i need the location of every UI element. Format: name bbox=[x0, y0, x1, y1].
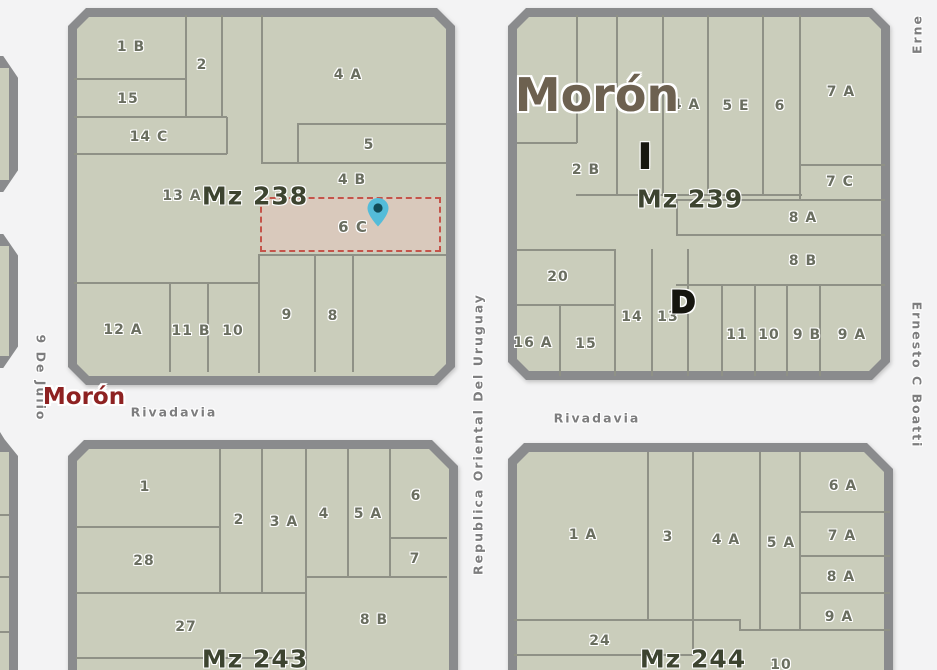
parcel-boundary-line bbox=[614, 249, 616, 376]
street-label: Rivadavia bbox=[131, 405, 218, 420]
parcel-boundary-line bbox=[219, 449, 221, 593]
parcel-boundary-line bbox=[74, 116, 227, 118]
parcel-boundary-line bbox=[517, 304, 615, 306]
parcel-label[interactable]: 4 A bbox=[712, 532, 740, 548]
parcel-boundary-line bbox=[676, 234, 885, 236]
parcel-boundary-line bbox=[347, 449, 349, 577]
selected-parcel-label[interactable]: 6 C bbox=[338, 218, 368, 236]
parcel-boundary-line bbox=[221, 15, 223, 117]
parcel-boundary-line bbox=[799, 15, 801, 200]
parcel-boundary-line bbox=[297, 123, 446, 125]
parcel-boundary-line bbox=[786, 284, 788, 376]
block-label-mz238: Mz 238 bbox=[202, 182, 308, 211]
parcel-label[interactable]: 3 A bbox=[270, 514, 298, 530]
parcel-boundary-line bbox=[721, 284, 723, 376]
parcel-boundary-line bbox=[261, 449, 263, 593]
parcel-label[interactable]: 24 bbox=[589, 633, 610, 649]
block-label-mz243: Mz 243 bbox=[202, 645, 308, 670]
parcel-label[interactable]: 5 bbox=[364, 137, 375, 153]
parcel-boundary-line bbox=[352, 255, 354, 372]
parcel-label[interactable]: 1 A bbox=[569, 527, 597, 543]
parcel-label[interactable]: 14 bbox=[621, 309, 642, 325]
parcel-label[interactable]: 8 B bbox=[360, 612, 388, 628]
parcel-boundary-line bbox=[305, 576, 447, 578]
parcel-boundary-line bbox=[389, 537, 447, 539]
parcel-boundary-line bbox=[762, 15, 764, 195]
parcel-boundary-line bbox=[799, 164, 885, 166]
parcel-boundary-line bbox=[754, 284, 756, 376]
map-marker-icon[interactable] bbox=[366, 197, 390, 228]
parcel-label[interactable]: 6 A bbox=[829, 478, 857, 494]
parcel-boundary-line bbox=[305, 449, 307, 577]
parcel-label[interactable]: 8 bbox=[328, 308, 339, 324]
parcel-label[interactable]: 11 B bbox=[171, 323, 210, 339]
parcel-label[interactable]: 7 bbox=[410, 551, 421, 567]
parcel-boundary-line bbox=[74, 153, 227, 155]
parcel-boundary-line bbox=[389, 449, 391, 577]
parcel-boundary-line bbox=[185, 15, 187, 117]
parcel-boundary-line bbox=[651, 249, 653, 376]
parcel-label[interactable]: 5 A bbox=[767, 535, 795, 551]
block-label-mz244: Mz 244 bbox=[640, 645, 746, 670]
parcel-boundary-line bbox=[799, 452, 801, 630]
parcel-label[interactable]: 1 B bbox=[117, 39, 145, 55]
parcel-label[interactable]: 2 B bbox=[572, 162, 600, 178]
zone-letter: I bbox=[639, 137, 652, 177]
parcel-boundary-line bbox=[258, 255, 260, 373]
parcel-label[interactable]: 8 A bbox=[789, 210, 817, 226]
parcel-boundary-line bbox=[297, 124, 299, 163]
parcel-boundary-line bbox=[74, 78, 186, 80]
parcel-label[interactable]: 10 bbox=[770, 657, 791, 670]
parcel-boundary-line bbox=[74, 282, 260, 284]
parcel-label[interactable]: 14 C bbox=[130, 129, 169, 145]
zone-letter: D bbox=[671, 286, 696, 321]
parcel-label[interactable]: 13 A bbox=[162, 188, 201, 204]
parcel-boundary-line bbox=[559, 304, 561, 376]
street-label: Republica Oriental Del Uruguay bbox=[471, 293, 486, 575]
parcel-label[interactable]: 27 bbox=[175, 619, 196, 635]
parcel-label[interactable]: 10 bbox=[758, 327, 779, 343]
parcel-label[interactable]: 4 B bbox=[338, 172, 366, 188]
parcel-boundary-line bbox=[799, 592, 890, 594]
parcel-label[interactable]: 12 A bbox=[103, 322, 142, 338]
parcel-boundary-line bbox=[314, 255, 316, 372]
parcel-boundary-line bbox=[759, 452, 761, 630]
parcel-label[interactable]: 9 A bbox=[825, 609, 853, 625]
parcel-boundary-line bbox=[799, 555, 890, 557]
parcel-boundary-line bbox=[647, 452, 649, 620]
block-mz243[interactable] bbox=[68, 440, 458, 670]
parcel-boundary-line bbox=[707, 15, 709, 193]
parcel-boundary-line bbox=[514, 619, 740, 621]
street-label: Erne bbox=[910, 14, 925, 54]
parcel-label[interactable]: 15 bbox=[575, 336, 596, 352]
parcel-boundary-line bbox=[261, 162, 446, 164]
parcel-label[interactable]: 10 bbox=[222, 323, 243, 339]
parcel-boundary-line bbox=[226, 117, 228, 154]
cadastral-map: 6 C Morón Morón Mz 2381 B21514 C4 A54 B1… bbox=[0, 0, 937, 670]
parcel-label[interactable]: 4 bbox=[319, 506, 330, 522]
parcel-label[interactable]: 9 bbox=[282, 307, 293, 323]
parcel-boundary-line bbox=[799, 511, 890, 513]
parcel-label[interactable]: 6 bbox=[411, 488, 422, 504]
parcel-label[interactable]: 7 A bbox=[828, 528, 856, 544]
edge-block-fragment bbox=[0, 56, 18, 192]
parcel-label[interactable]: 11 bbox=[726, 327, 747, 343]
street-label: Ernesto C Boatti bbox=[910, 302, 925, 449]
parcel-label[interactable]: 4 A bbox=[334, 67, 362, 83]
parcel-label[interactable]: 9 B bbox=[793, 327, 821, 343]
parcel-label[interactable]: 16 A bbox=[513, 335, 552, 351]
parcel-label[interactable]: 6 bbox=[775, 98, 786, 114]
edge-block-fragment bbox=[0, 234, 18, 368]
parcel-label[interactable]: 9 A bbox=[838, 327, 866, 343]
edge-block-fragment bbox=[0, 432, 18, 670]
parcel-label[interactable]: 28 bbox=[133, 553, 154, 569]
parcel-boundary-line bbox=[261, 15, 263, 163]
parcel-label[interactable]: 1 bbox=[140, 479, 151, 495]
parcel-label[interactable]: 2 bbox=[234, 512, 245, 528]
parcel-boundary-line bbox=[676, 284, 885, 286]
parcel-label[interactable]: 7 A bbox=[827, 84, 855, 100]
block-label-mz239: Mz 239 bbox=[637, 185, 743, 214]
parcel-boundary-line bbox=[692, 452, 694, 655]
parcel-boundary-line bbox=[739, 619, 741, 631]
parcel-label[interactable]: 15 bbox=[117, 91, 138, 107]
parcel-label[interactable]: 8 A bbox=[827, 569, 855, 585]
parcel-boundary-line bbox=[76, 592, 306, 594]
parcel-label[interactable]: 20 bbox=[547, 269, 568, 285]
parcel-boundary-line bbox=[517, 249, 615, 251]
city-label-large: Morón bbox=[515, 68, 679, 122]
parcel-boundary-line bbox=[739, 629, 890, 631]
city-label-red: Morón bbox=[43, 384, 125, 410]
parcel-boundary-line bbox=[76, 526, 220, 528]
parcel-label[interactable]: 8 B bbox=[789, 253, 817, 269]
parcel-label[interactable]: 2 bbox=[197, 57, 208, 73]
parcel-boundary-line bbox=[517, 142, 577, 144]
parcel-label[interactable]: 3 bbox=[663, 529, 674, 545]
parcel-label[interactable]: 5 E bbox=[722, 98, 749, 114]
parcel-label[interactable]: 7 C bbox=[826, 174, 854, 190]
street-label: Rivadavia bbox=[554, 411, 641, 426]
parcel-label[interactable]: 5 A bbox=[354, 506, 382, 522]
